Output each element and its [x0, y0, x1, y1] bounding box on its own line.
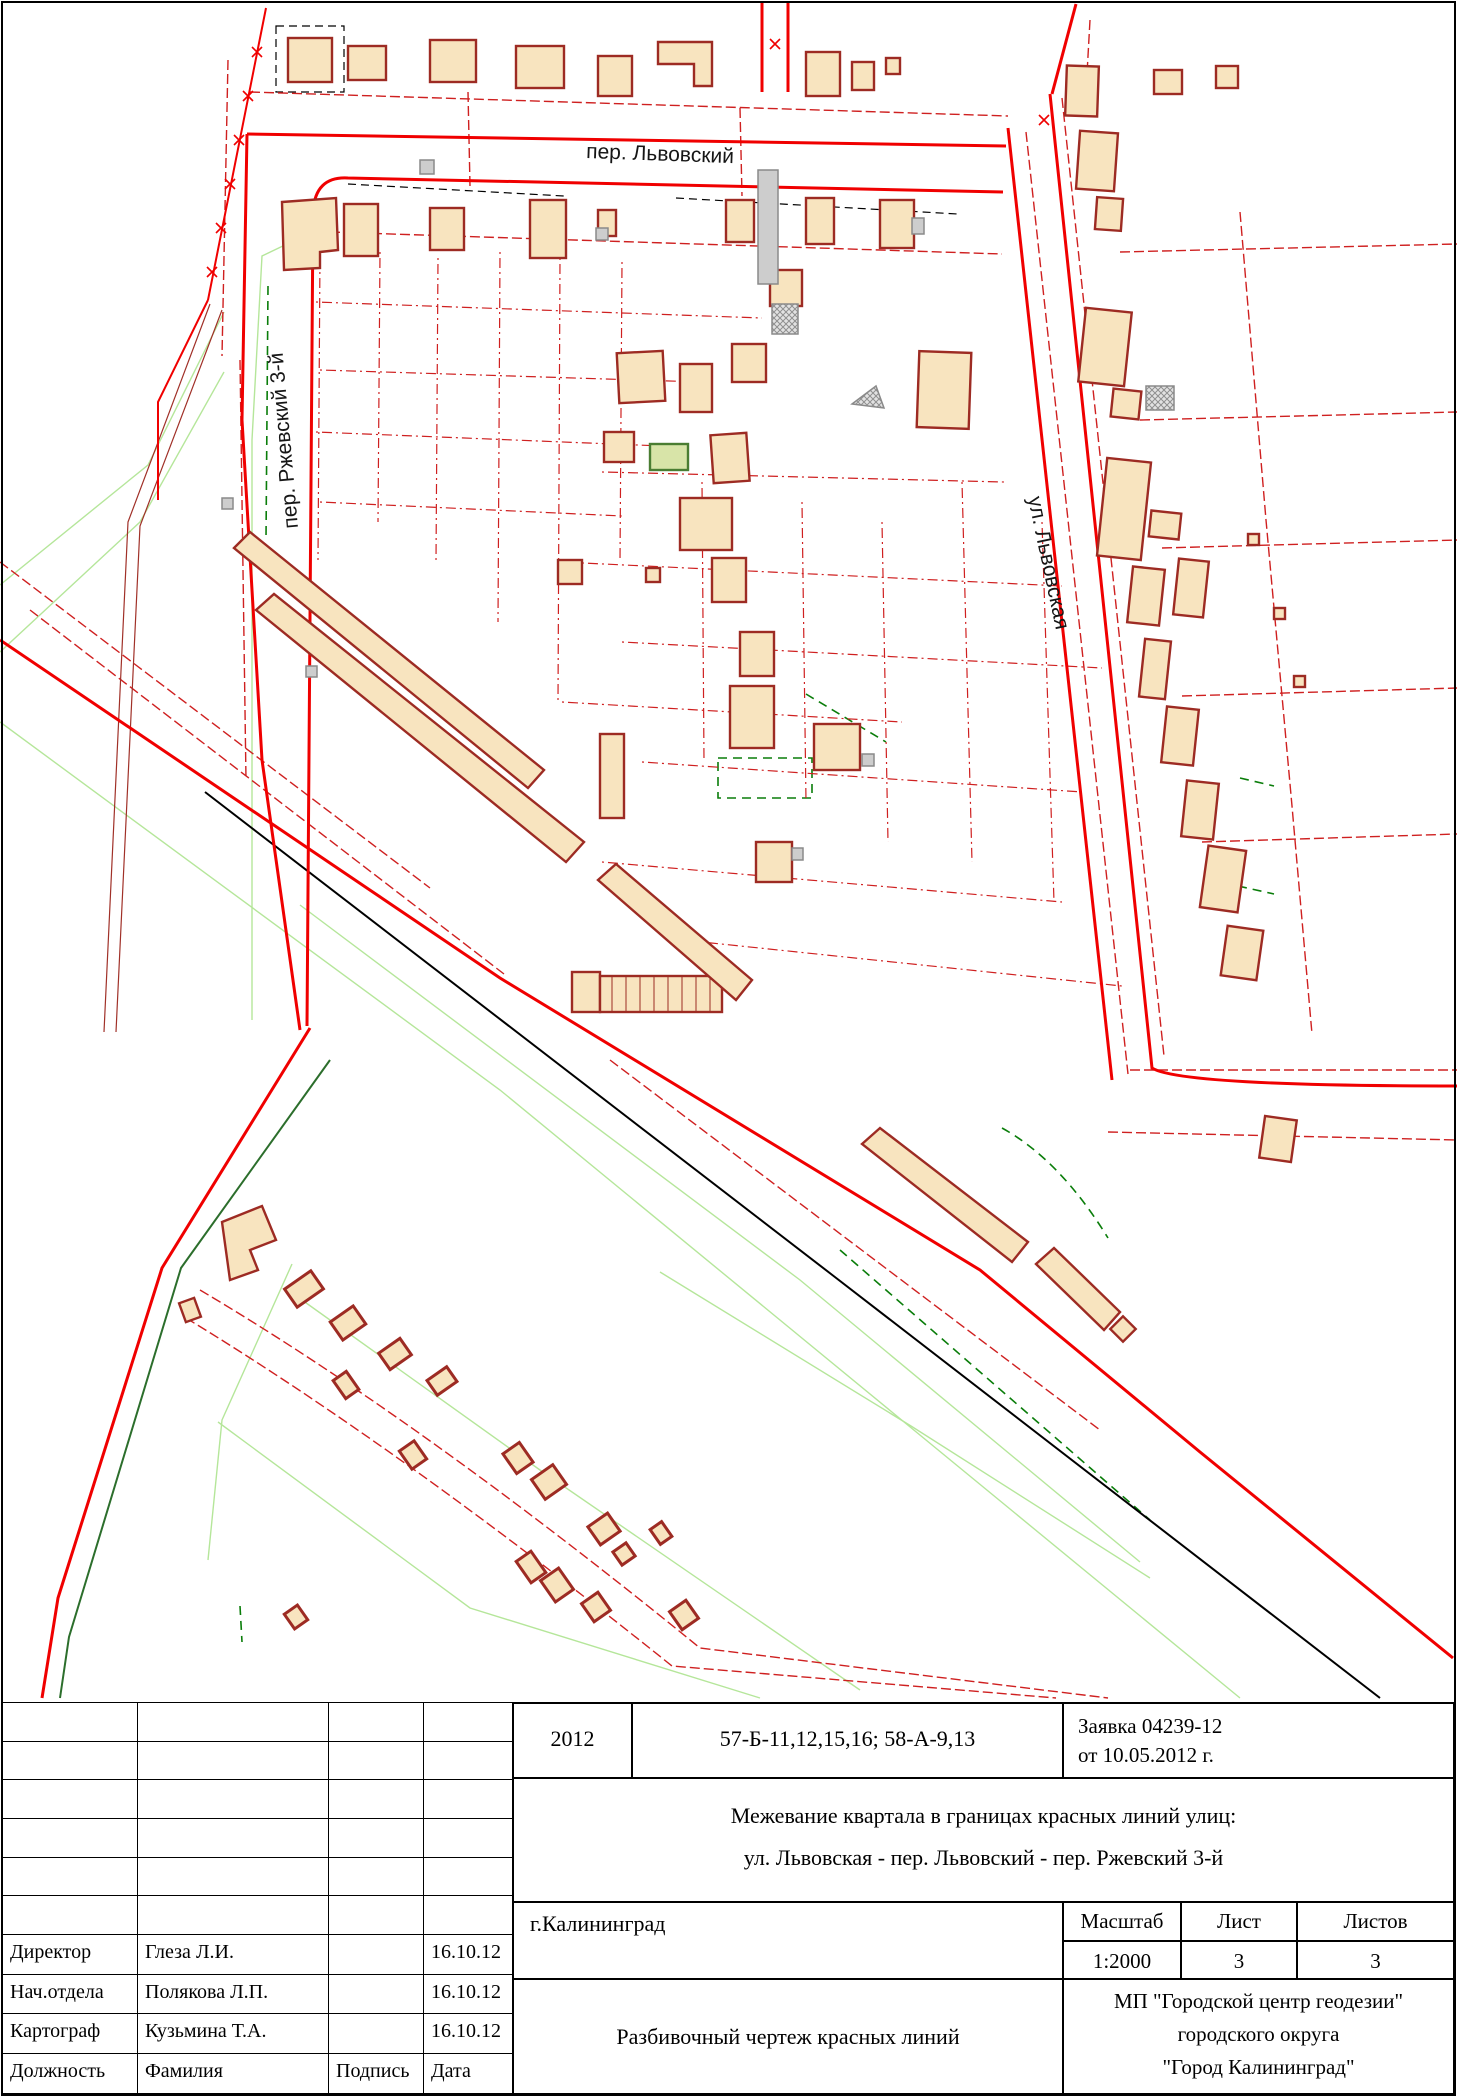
building: [806, 198, 834, 244]
building: [288, 38, 332, 82]
building: [1076, 131, 1118, 192]
building: [650, 1522, 672, 1545]
building: [427, 1367, 457, 1396]
building: [530, 200, 566, 258]
building: [1274, 608, 1285, 619]
building: [613, 1543, 635, 1565]
org-line1: МП "Городской центр геодезии": [1064, 1985, 1453, 2018]
building: [730, 686, 774, 748]
building: [1248, 534, 1259, 545]
building: [1221, 926, 1264, 981]
building: [712, 558, 746, 602]
building: [740, 632, 774, 676]
hatched-structure: [852, 386, 884, 408]
signature-table: Директор Глеза Л.И. 16.10.12 Нач.отдела …: [2, 1702, 513, 2093]
building: [886, 58, 900, 74]
building: [284, 1605, 307, 1629]
org-line2: городского округа: [1064, 2018, 1453, 2051]
street-label-top: пер. Львовский: [586, 140, 735, 168]
building: [1149, 511, 1182, 540]
building: [179, 1298, 201, 1322]
building-green: [650, 444, 688, 470]
building: [430, 208, 464, 250]
building: [1154, 70, 1182, 94]
building: [732, 344, 766, 382]
request-line2: от 10.05.2012 г.: [1078, 1741, 1453, 1770]
building: [1216, 66, 1238, 88]
sig-date: 16.10.12: [423, 2013, 514, 2054]
building: [806, 52, 840, 96]
building: [348, 46, 386, 80]
building: [282, 198, 338, 270]
building: [669, 1600, 698, 1629]
building: [256, 594, 584, 862]
sheet-label-cell: Лист: [1180, 1901, 1298, 1942]
building: [558, 560, 582, 584]
building: [399, 1441, 426, 1469]
building: [814, 724, 860, 770]
building: [581, 1592, 610, 1621]
building: [222, 1206, 276, 1280]
building: [1139, 639, 1171, 699]
building: [710, 433, 749, 483]
building: [726, 200, 754, 242]
red-dashed-mesh-layer: [316, 252, 1122, 986]
lane-lines-layer: [104, 304, 222, 1032]
request-cell: Заявка 04239-12 от 10.05.2012 г.: [1062, 1702, 1455, 1779]
org-line3: "Город Калининград": [1064, 2051, 1453, 2084]
sig-name: Глеза Л.И.: [137, 1934, 329, 1975]
dark-green-layer: [60, 1060, 330, 1698]
gray-box: [792, 848, 803, 860]
doc-type-cell: Разбивочный чертеж красных линий: [512, 1978, 1064, 2095]
building: [1181, 780, 1219, 839]
sig-signature: [328, 1974, 424, 2015]
sig-signature: [328, 1934, 424, 1975]
building: [516, 46, 564, 88]
building: [588, 1513, 620, 1545]
building: [852, 62, 874, 90]
building: [1036, 1248, 1120, 1330]
sheets-value-cell: 3: [1296, 1940, 1455, 1980]
sig-date: Дата: [423, 2053, 514, 2094]
building: [600, 734, 624, 818]
sig-signature: Подпись: [328, 2053, 424, 2094]
request-line1: Заявка 04239-12: [1078, 1712, 1453, 1741]
building: [234, 532, 544, 788]
year-cell: 2012: [512, 1702, 633, 1779]
subject-line1: Межевание квартала в границах красных ли…: [514, 1795, 1453, 1837]
building: [516, 1551, 546, 1583]
building: [658, 42, 712, 86]
gray-building: [758, 170, 778, 284]
sig-name: Фамилия: [137, 2053, 329, 2094]
building: [1065, 65, 1099, 116]
city-cell: г.Калининград: [512, 1901, 1064, 1980]
building: [1111, 389, 1142, 420]
building: [917, 351, 972, 429]
sig-date: 16.10.12: [423, 1974, 514, 2015]
gray-box: [596, 228, 608, 240]
building: [330, 1306, 366, 1340]
street-label-left: пер. Ржевский 3-й: [265, 352, 303, 530]
building: [1259, 1116, 1297, 1162]
sig-role: Картограф: [2, 2013, 138, 2054]
building: [600, 976, 722, 1012]
subject-line2: ул. Львовская - пер. Львовский - пер. Рж…: [514, 1837, 1453, 1879]
street-label-right: ул. Львовская: [1023, 494, 1074, 631]
hatched-structure: [1146, 386, 1174, 410]
sheet-codes-cell: 57-Б-11,12,15,16; 58-А-9,13: [631, 1702, 1064, 1779]
building: [1127, 566, 1165, 625]
building: [379, 1338, 412, 1369]
building: [604, 432, 634, 462]
sig-role: Должность: [2, 2053, 138, 2094]
building: [617, 351, 666, 403]
gray-box: [222, 498, 233, 509]
sig-role: Нач.отдела: [2, 1974, 138, 2015]
building: [430, 40, 476, 82]
building: [880, 200, 914, 248]
sig-name: Кузьмина Т.А.: [137, 2013, 329, 2054]
gray-box: [306, 666, 317, 677]
building: [862, 1128, 1028, 1262]
buildings-layer: [179, 38, 1305, 1630]
gray-box: [912, 218, 924, 234]
building: [598, 56, 632, 96]
building: [756, 842, 792, 882]
building: [531, 1465, 566, 1500]
building: [572, 972, 600, 1012]
building: [1173, 559, 1209, 618]
scale-value-cell: 1:2000: [1062, 1940, 1182, 1980]
sig-signature: [328, 2013, 424, 2054]
railway-layer: [205, 792, 1380, 1698]
building: [1097, 458, 1151, 560]
building: [1294, 676, 1305, 687]
building: [333, 1371, 359, 1398]
gray-box: [862, 754, 874, 766]
sig-name: Полякова Л.П.: [137, 1974, 329, 2015]
building: [680, 364, 712, 412]
building: [1161, 706, 1199, 765]
organization-cell: МП "Городской центр геодезии" городского…: [1062, 1978, 1455, 2095]
building: [1078, 308, 1131, 386]
subject-cell: Межевание квартала в границах красных ли…: [512, 1777, 1455, 1903]
hatched-structure: [772, 304, 798, 334]
building: [285, 1271, 324, 1307]
sheets-label-cell: Листов: [1296, 1901, 1455, 1942]
gray-box: [420, 160, 434, 174]
scale-label-cell: Масштаб: [1062, 1901, 1182, 1942]
building: [646, 568, 660, 582]
building: [344, 204, 378, 256]
sheet-value-cell: 3: [1180, 1940, 1298, 1980]
building: [1200, 846, 1246, 913]
building: [680, 498, 732, 550]
sig-date: 16.10.12: [423, 1934, 514, 1975]
drawing-page: пер. Львовский пер. Ржевский 3-й ул. Льв…: [0, 0, 1457, 2097]
sig-role: Директор: [2, 1934, 138, 1975]
building: [1095, 197, 1123, 231]
